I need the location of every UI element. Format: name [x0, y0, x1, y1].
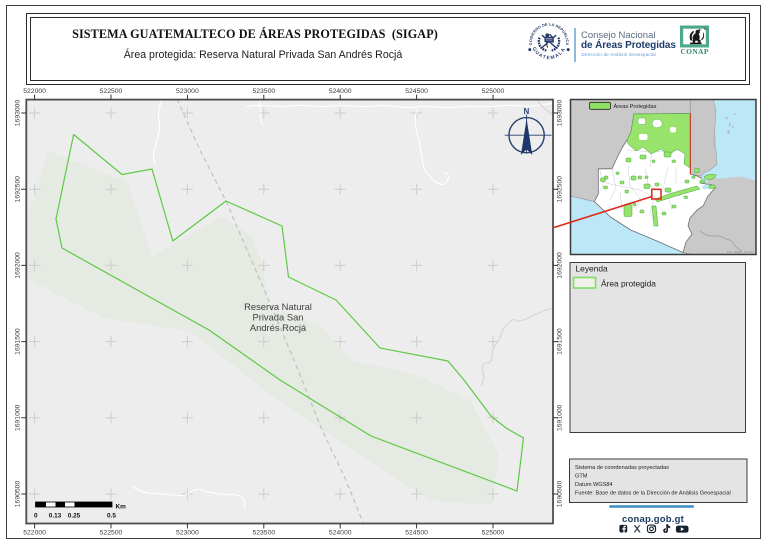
svg-text:Leyenda: Leyenda [576, 264, 608, 274]
svg-text:N: N [524, 107, 530, 116]
svg-text:0.25: 0.25 [68, 513, 81, 520]
svg-text:0.5: 0.5 [107, 513, 116, 520]
svg-text:Andrés Rocjá: Andrés Rocjá [250, 322, 307, 333]
svg-text:524000: 524000 [329, 88, 352, 95]
svg-text:Esri, HERE, Garmin: Esri, HERE, Garmin [727, 250, 754, 254]
svg-text:conap.gob.gt: conap.gob.gt [622, 514, 685, 525]
svg-text:522000: 522000 [23, 530, 46, 537]
svg-text:523000: 523000 [176, 530, 199, 537]
svg-text:Km: Km [116, 504, 127, 511]
svg-text:Área protegida: Área protegida [601, 279, 656, 289]
svg-text:1690500: 1690500 [556, 481, 563, 508]
svg-text:523000: 523000 [176, 88, 199, 95]
svg-text:1691000: 1691000 [14, 404, 21, 431]
svg-text:1691500: 1691500 [556, 328, 563, 355]
svg-text:524000: 524000 [329, 530, 352, 537]
svg-text:523500: 523500 [252, 88, 275, 95]
svg-text:Privada San: Privada San [252, 312, 303, 323]
svg-text:Áreas Protegidas: Áreas Protegidas [614, 103, 657, 110]
svg-text:0: 0 [34, 513, 38, 520]
svg-text:Datum WGS84: Datum WGS84 [575, 482, 613, 488]
svg-text:1692500: 1692500 [556, 176, 563, 203]
svg-text:1692500: 1692500 [14, 176, 21, 203]
svg-text:1690500: 1690500 [14, 481, 21, 508]
svg-text:Fuente: Base de datos de la Di: Fuente: Base de datos de la Dirección de… [575, 491, 731, 497]
svg-text:1691500: 1691500 [14, 328, 21, 355]
svg-text:1693000: 1693000 [14, 100, 21, 127]
svg-text:522500: 522500 [100, 88, 123, 95]
svg-text:1691000: 1691000 [556, 404, 563, 431]
svg-text:1692000: 1692000 [14, 252, 21, 279]
svg-text:Sistema de coordenadas proyect: Sistema de coordenadas proyectadas [575, 465, 669, 471]
svg-text:524500: 524500 [405, 530, 428, 537]
svg-text:524500: 524500 [405, 88, 428, 95]
svg-text:1692000: 1692000 [556, 252, 563, 279]
svg-text:0.13: 0.13 [49, 513, 62, 520]
svg-text:1693000: 1693000 [556, 100, 563, 127]
svg-text:525000: 525000 [482, 88, 505, 95]
svg-text:523500: 523500 [252, 530, 275, 537]
svg-text:Reserva Natural: Reserva Natural [244, 301, 312, 312]
svg-text:522500: 522500 [100, 530, 123, 537]
svg-text:522000: 522000 [23, 88, 46, 95]
svg-text:525000: 525000 [482, 530, 505, 537]
svg-text:GTM: GTM [575, 474, 588, 480]
